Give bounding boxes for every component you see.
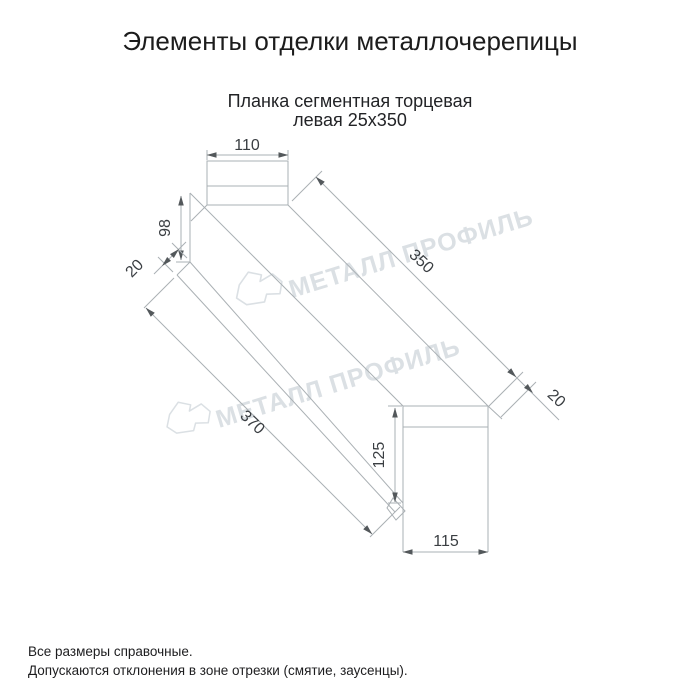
- footer-notes: Все размеры справочные. Допускаются откл…: [28, 642, 408, 680]
- bottom-end-face: [403, 406, 488, 552]
- ext-line: [158, 243, 187, 272]
- footer-note-line2: Допускаются отклонения в зоне отрезки (с…: [28, 661, 408, 680]
- dim-label-20-left: 20: [123, 256, 148, 281]
- footer-note-line1: Все размеры справочные.: [28, 642, 408, 661]
- long-edge-front-top: [190, 193, 403, 406]
- metall-profil-logo-icon: [162, 395, 214, 437]
- dim-label-98: 98: [157, 219, 174, 237]
- dimension-lines: [144, 150, 559, 552]
- watermark-2: МЕТАЛЛ ПРОФИЛЬ: [162, 333, 464, 437]
- dimension-labels: 110 98 20 350 20 370 125 115: [123, 137, 569, 550]
- technical-drawing: МЕТАЛЛ ПРОФИЛЬ МЕТАЛЛ ПРОФИЛЬ: [0, 0, 700, 700]
- catalog-drawing-page: Элементы отделки металлочерепицы Планка …: [0, 0, 700, 700]
- top-end-face: [207, 161, 288, 205]
- long-edge-lip-outer: [177, 275, 395, 512]
- dim-label-20-right: 20: [544, 386, 569, 411]
- dim-label-125: 125: [371, 442, 388, 469]
- metall-profil-logo-icon: [231, 264, 286, 308]
- left-lip-edge: [177, 262, 190, 275]
- dim-label-110: 110: [234, 137, 260, 154]
- right-lip-edge: [488, 406, 502, 419]
- watermark-1: МЕТАЛЛ ПРОФИЛЬ: [231, 203, 537, 309]
- dim-label-115: 115: [433, 533, 459, 550]
